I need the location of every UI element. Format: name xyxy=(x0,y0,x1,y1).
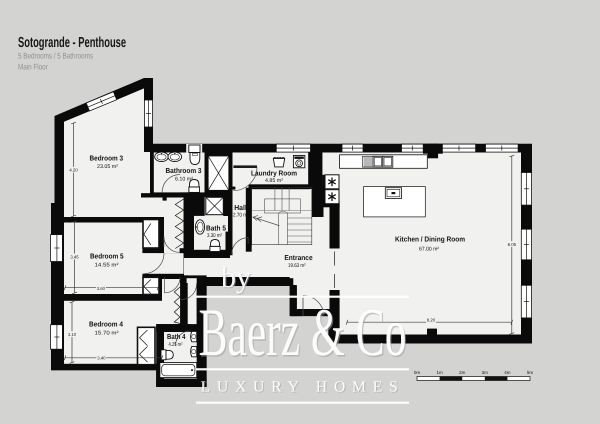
svg-text:Laundry Room: Laundry Room xyxy=(251,169,297,178)
svg-text:15.70 m²: 15.70 m² xyxy=(95,331,119,337)
svg-text:Kitchen / Dining Room: Kitchen / Dining Room xyxy=(395,235,465,244)
svg-text:3.60: 3.60 xyxy=(97,286,106,291)
svg-text:3.10: 3.10 xyxy=(68,332,77,337)
svg-text:4.85 m²: 4.85 m² xyxy=(265,178,283,184)
svg-text:LUXURY HOMES: LUXURY HOMES xyxy=(201,378,405,395)
svg-text:Bath 5: Bath 5 xyxy=(206,223,226,232)
svg-text:Bedroom 4: Bedroom 4 xyxy=(89,320,123,329)
svg-text:2m: 2m xyxy=(459,370,466,375)
svg-text:0m: 0m xyxy=(414,370,421,375)
svg-text:4.25 m²: 4.25 m² xyxy=(169,342,183,348)
svg-text:Sotogrande - Penthouse: Sotogrande - Penthouse xyxy=(18,35,126,51)
svg-text:Bedroom 5: Bedroom 5 xyxy=(90,252,124,261)
svg-text:3m: 3m xyxy=(482,370,489,375)
svg-text:Hall: Hall xyxy=(234,203,247,212)
svg-text:Bathroom 3: Bathroom 3 xyxy=(166,166,202,175)
svg-text:4.20: 4.20 xyxy=(69,168,78,173)
svg-text:Bedroom 3: Bedroom 3 xyxy=(90,153,124,162)
svg-text:8.20: 8.20 xyxy=(427,318,436,323)
svg-text:5 Bedrooms / 5 Bathrooms: 5 Bedrooms / 5 Bathrooms xyxy=(18,52,93,61)
svg-text:by: by xyxy=(221,261,251,294)
svg-text:6.10 m²: 6.10 m² xyxy=(175,176,193,182)
svg-text:4m: 4m xyxy=(504,370,511,375)
svg-text:14.55 m²: 14.55 m² xyxy=(95,263,119,269)
svg-text:Baerz & Co: Baerz & Co xyxy=(199,294,407,370)
svg-text:8.05: 8.05 xyxy=(508,242,517,247)
svg-text:Entrance: Entrance xyxy=(284,253,312,262)
svg-text:19.63 m²: 19.63 m² xyxy=(288,263,306,269)
svg-text:3.45: 3.45 xyxy=(70,254,79,259)
svg-text:2.70 m²: 2.70 m² xyxy=(233,213,249,219)
svg-text:67.00 m²: 67.00 m² xyxy=(419,247,439,253)
svg-text:5m: 5m xyxy=(527,370,534,375)
svg-text:1m: 1m xyxy=(436,370,443,375)
svg-text:23.05 m²: 23.05 m² xyxy=(97,164,118,170)
svg-text:Bath 4: Bath 4 xyxy=(167,332,186,341)
svg-text:3.40: 3.40 xyxy=(97,356,106,361)
svg-text:3.30 m²: 3.30 m² xyxy=(207,233,222,239)
svg-text:Main Floor: Main Floor xyxy=(18,63,48,72)
